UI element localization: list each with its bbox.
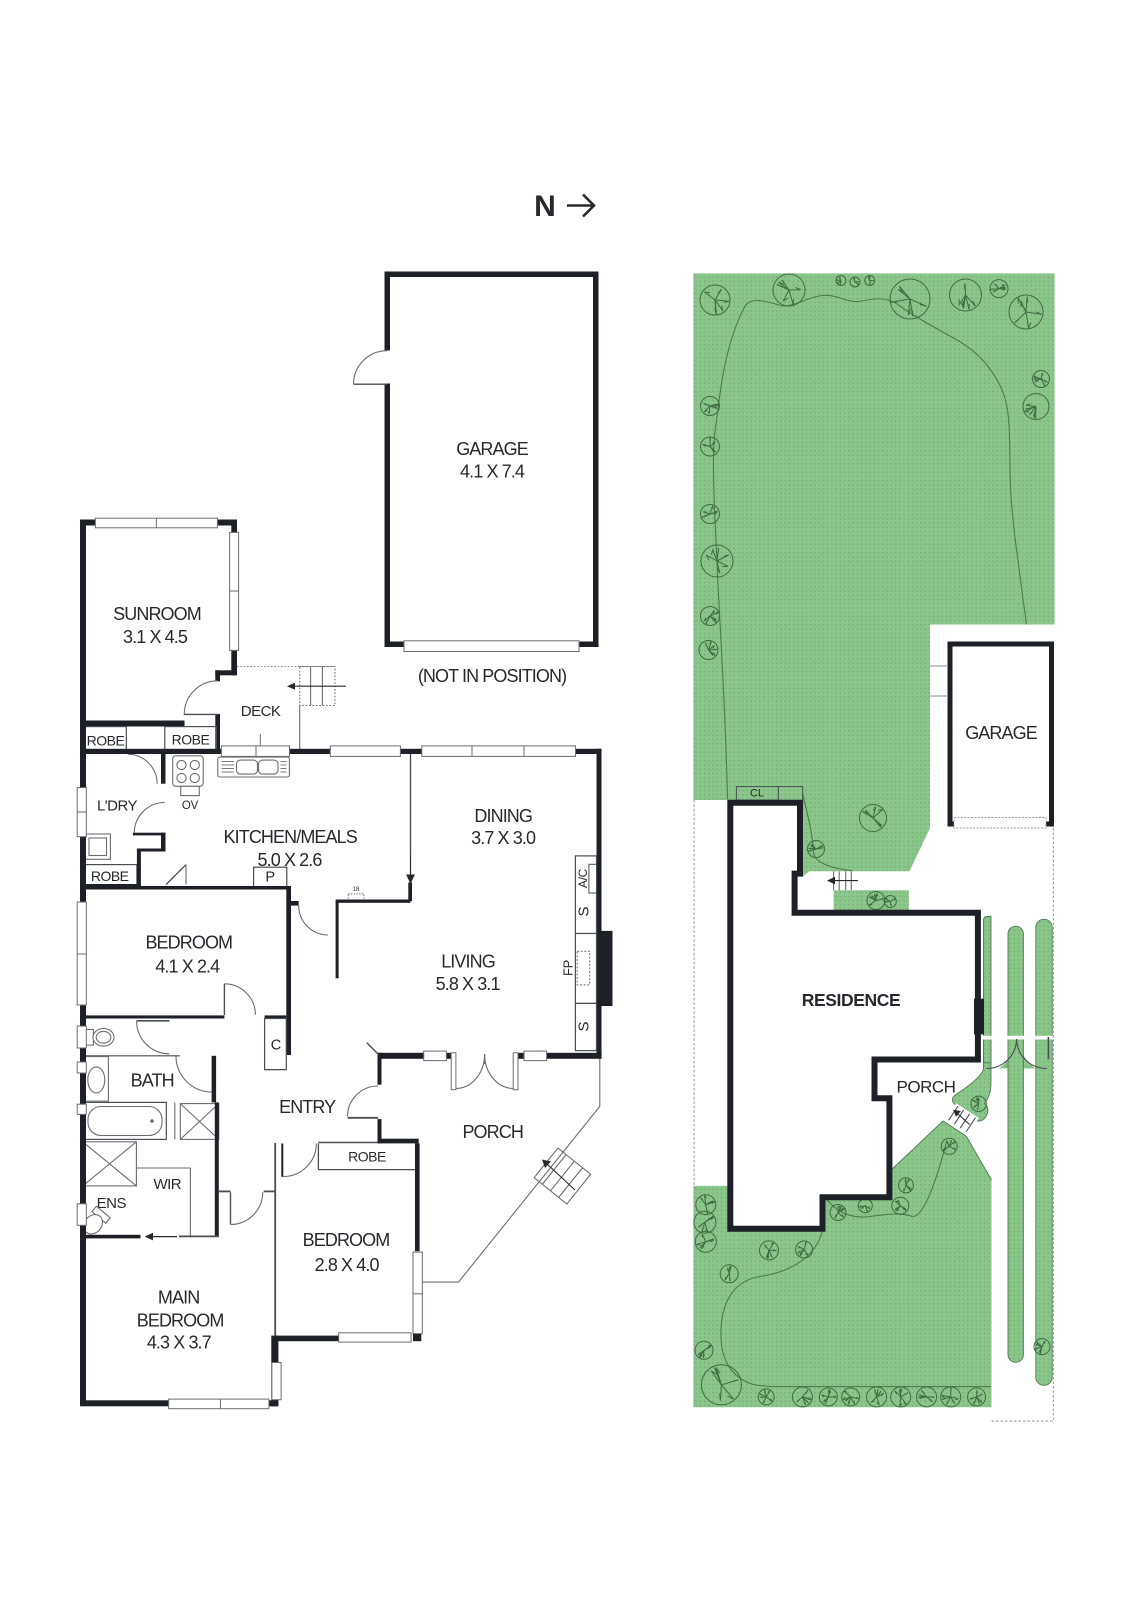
svg-text:5.0 X 2.6: 5.0 X 2.6 — [258, 850, 323, 870]
svg-text:N: N — [534, 190, 556, 223]
svg-text:S: S — [576, 906, 593, 916]
svg-text:CL: CL — [750, 788, 764, 800]
svg-text:C: C — [271, 1038, 281, 1054]
svg-text:SUNROOM: SUNROOM — [113, 604, 201, 624]
svg-text:MAIN: MAIN — [158, 1288, 199, 1308]
svg-text:PORCH: PORCH — [462, 1122, 523, 1142]
svg-text:3.7 X 3.0: 3.7 X 3.0 — [471, 828, 536, 848]
svg-text:DINING: DINING — [474, 806, 532, 826]
svg-text:WIR: WIR — [153, 1176, 181, 1193]
svg-text:(NOT IN POSITION): (NOT IN POSITION) — [418, 666, 566, 686]
svg-text:OV: OV — [182, 800, 199, 812]
svg-text:ENTRY: ENTRY — [279, 1097, 336, 1117]
svg-text:ROBE: ROBE — [348, 1149, 386, 1165]
svg-text:GARAGE: GARAGE — [456, 439, 529, 459]
svg-text:FP: FP — [561, 960, 576, 976]
svg-text:4.3 X 3.7: 4.3 X 3.7 — [147, 1332, 212, 1352]
svg-text:4.1 X 7.4: 4.1 X 7.4 — [460, 462, 525, 482]
svg-text:BEDROOM: BEDROOM — [137, 1310, 224, 1330]
svg-text:ROBE: ROBE — [87, 733, 125, 749]
svg-text:BEDROOM: BEDROOM — [303, 1230, 390, 1250]
svg-text:PORCH: PORCH — [897, 1078, 956, 1097]
svg-text:3.1 X 4.5: 3.1 X 4.5 — [123, 627, 188, 647]
svg-text:4.1 X 2.4: 4.1 X 2.4 — [155, 957, 220, 977]
svg-text:A/C: A/C — [576, 868, 590, 888]
svg-text:DECK: DECK — [241, 703, 281, 720]
svg-text:RESIDENCE: RESIDENCE — [802, 990, 901, 1010]
svg-text:2.8 X 4.0: 2.8 X 4.0 — [315, 1255, 380, 1275]
svg-text:S: S — [576, 1021, 593, 1031]
svg-text:LIVING: LIVING — [441, 952, 495, 972]
svg-text:5.8 X 3.1: 5.8 X 3.1 — [436, 974, 501, 994]
svg-text:BEDROOM: BEDROOM — [145, 933, 232, 953]
svg-text:P: P — [265, 870, 275, 886]
svg-text:ROBE: ROBE — [91, 868, 129, 884]
svg-text:BATH: BATH — [131, 1071, 174, 1091]
svg-text:GARAGE: GARAGE — [965, 723, 1038, 743]
svg-text:L'DRY: L'DRY — [97, 798, 138, 815]
svg-text:KITCHEN/MEALS: KITCHEN/MEALS — [224, 827, 358, 847]
svg-text:18: 18 — [353, 887, 360, 893]
svg-text:ROBE: ROBE — [172, 732, 210, 748]
